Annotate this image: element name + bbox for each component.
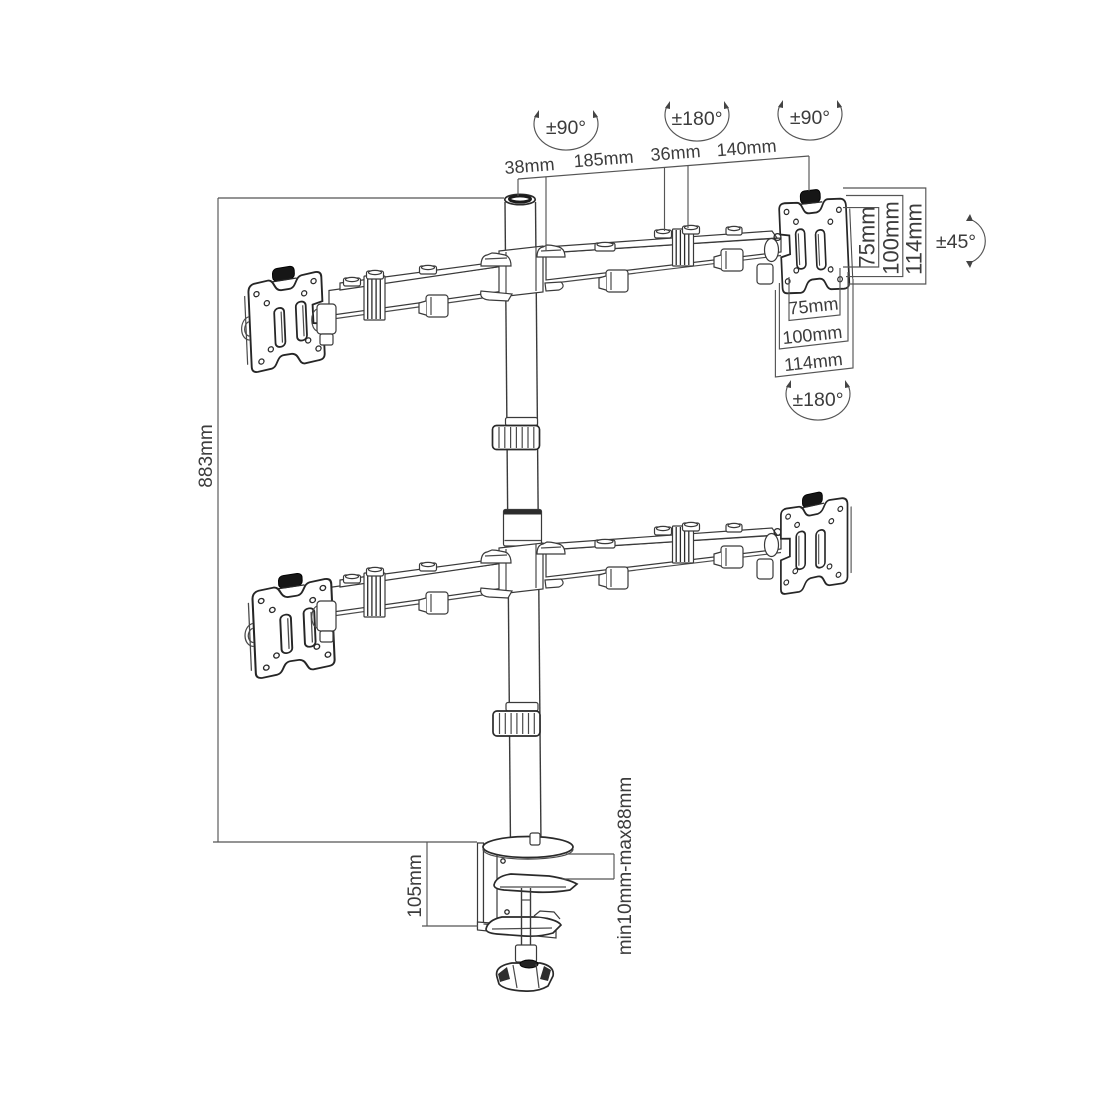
svg-text:±90°: ±90° (546, 117, 586, 139)
svg-text:114mm: 114mm (902, 203, 927, 275)
svg-text:100mm: 100mm (879, 201, 904, 274)
svg-text:±180°: ±180° (792, 389, 843, 411)
svg-text:±45°: ±45° (936, 231, 976, 253)
svg-text:75mm: 75mm (855, 206, 880, 267)
svg-text:883mm: 883mm (196, 424, 217, 487)
svg-text:±90°: ±90° (790, 107, 830, 129)
svg-text:min10mm-max88mm: min10mm-max88mm (615, 777, 636, 955)
svg-text:36mm: 36mm (650, 141, 701, 165)
svg-text:105mm: 105mm (405, 854, 426, 917)
svg-text:38mm: 38mm (504, 154, 555, 178)
svg-text:±180°: ±180° (671, 108, 722, 130)
